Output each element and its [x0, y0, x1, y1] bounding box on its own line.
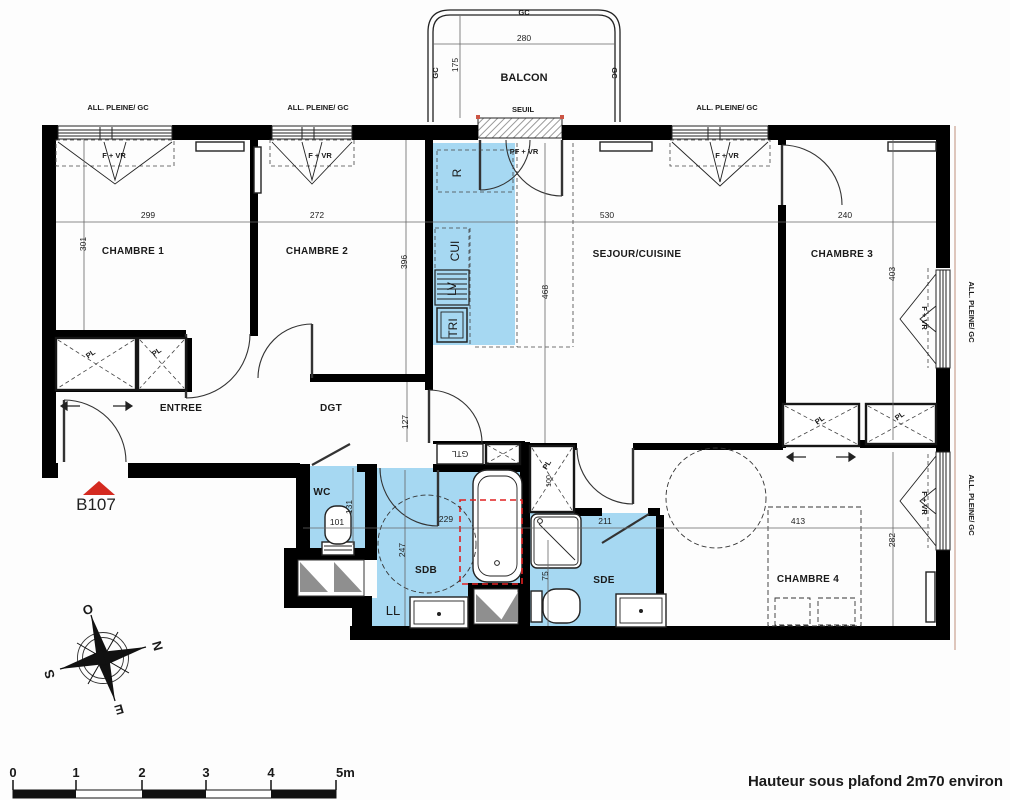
dim-c2-h: 396 [399, 255, 409, 269]
dim-c3-h: 403 [887, 267, 897, 281]
label-entree: ENTREE [160, 403, 202, 414]
label-dishwasher: LV [445, 282, 459, 296]
dim-dgt-h: 127 [400, 415, 410, 429]
pfvr-label: PF + VR [510, 147, 539, 156]
dim-sde-h: 75 [540, 571, 550, 581]
dim-c2-w: 272 [310, 210, 324, 220]
door-chambre2 [258, 324, 312, 378]
washbasin-sde [616, 594, 666, 627]
fvr-label-1: F + VR [102, 151, 126, 160]
dim-sde-w: 211 [598, 516, 612, 526]
label-sde: SDE [593, 575, 614, 586]
label-cooker: CUI [448, 241, 462, 262]
floor-plan-page: GC GC GC 280 175 BALCON SEUIL [0, 0, 1010, 800]
balcony: GC GC GC 280 175 BALCON SEUIL [428, 8, 620, 138]
label-chambre3: CHAMBRE 3 [811, 249, 873, 260]
compass-north: N [149, 639, 166, 652]
fvr-label-2: F + VR [308, 151, 332, 160]
ceiling-height-note: Hauteur sous plafond 2m70 environ [748, 773, 1003, 790]
balcony-gc-right: GC [610, 67, 619, 79]
scale-bar: 0 1 2 3 4 5m [9, 765, 354, 798]
dim-sdb-h: 247 [397, 543, 407, 557]
balcony-width-dim: 280 [517, 33, 531, 43]
unit-label: B107 [76, 495, 116, 514]
fvr-label-3: F + VR [715, 151, 739, 160]
door-dgt-sejour [429, 390, 482, 443]
label-tri: TRI [446, 318, 460, 337]
compass-rose-icon: O N S E [41, 601, 166, 718]
label-chambre1: CHAMBRE 1 [102, 246, 164, 257]
threshold-mark-left [476, 115, 480, 119]
label-ll: LL [386, 603, 400, 618]
dim-c1-h: 301 [78, 237, 88, 251]
dim-wc-h: 131 [344, 500, 354, 514]
door-wc [312, 444, 350, 465]
dim-c3-w: 240 [838, 210, 852, 220]
door-chambre1 [186, 334, 250, 398]
dim-sdb-w: 229 [439, 514, 453, 524]
dim-wc-w: 101 [330, 517, 344, 527]
allege-label-4: ALL. PLEINE/ GC [967, 281, 976, 343]
allege-label-3: ALL. PLEINE/ GC [696, 103, 758, 112]
compass-east: E [113, 701, 126, 718]
balcony-gc-left: GC [431, 67, 440, 79]
seuil-threshold [478, 118, 562, 138]
allege-label-1: ALL. PLEINE/ GC [87, 103, 149, 112]
allege-label-2: ALL. PLEINE/ GC [287, 103, 349, 112]
door-hall [577, 448, 633, 504]
allege-label-5: ALL. PLEINE/ GC [967, 474, 976, 536]
label-chambre4: CHAMBRE 4 [777, 574, 839, 585]
fvr-label-4: F + VR [920, 306, 929, 330]
scale-1: 1 [72, 765, 79, 780]
entrance-door-swing [64, 400, 126, 462]
dim-sejour-h: 468 [540, 285, 550, 299]
threshold-mark-right [560, 115, 564, 119]
dim-c1-w: 299 [141, 210, 155, 220]
label-dgt: DGT [320, 403, 342, 414]
floor-plan-svg: GC GC GC 280 175 BALCON SEUIL [0, 0, 1010, 800]
radiator-chambre1 [196, 142, 244, 151]
radiator-chambre2 [254, 147, 261, 193]
turning-circle-chambre4 [666, 448, 766, 548]
scale-0: 0 [9, 765, 16, 780]
scale-2: 2 [138, 765, 145, 780]
dim-closet-sde: 100 [546, 475, 553, 487]
shower-sde [531, 514, 581, 568]
toilet-sde [531, 589, 580, 623]
radiator-chambre3 [888, 142, 936, 151]
label-sejour: SEJOUR/CUISINE [593, 249, 682, 260]
scale-4: 4 [267, 765, 275, 780]
dim-c4-h: 282 [887, 533, 897, 547]
radiator-sejour [600, 142, 652, 151]
radiator-chambre4 [926, 572, 935, 622]
balcony-gc-top: GC [518, 8, 530, 17]
label-chambre2: CHAMBRE 2 [286, 246, 348, 257]
dim-c4-w: 413 [791, 516, 805, 526]
seuil-label: SEUIL [512, 105, 535, 114]
sliding-arrows-chambre4 [787, 453, 855, 461]
bed-chambre4 [768, 507, 861, 626]
balcony-label: BALCON [500, 72, 547, 84]
label-fridge: R [450, 168, 464, 177]
scale-5: 5m [336, 765, 355, 780]
kitchen-zone [433, 143, 515, 345]
scale-3: 3 [202, 765, 209, 780]
door-chambre3 [782, 145, 842, 205]
compass-south: S [41, 668, 58, 681]
entrance-marker-icon [83, 481, 115, 495]
washbasin-sdb [410, 597, 468, 628]
bathtub [473, 470, 522, 582]
compass-west: O [81, 601, 95, 618]
unit-marker: B107 [76, 481, 116, 514]
fvr-label-5: F + VR [920, 491, 929, 515]
label-wc: WC [313, 487, 330, 498]
dim-sejour-w: 530 [600, 210, 614, 220]
label-sdb: SDB [415, 565, 437, 576]
balcony-depth-dim: 175 [450, 58, 460, 72]
label-gtl: GTL [451, 449, 468, 459]
